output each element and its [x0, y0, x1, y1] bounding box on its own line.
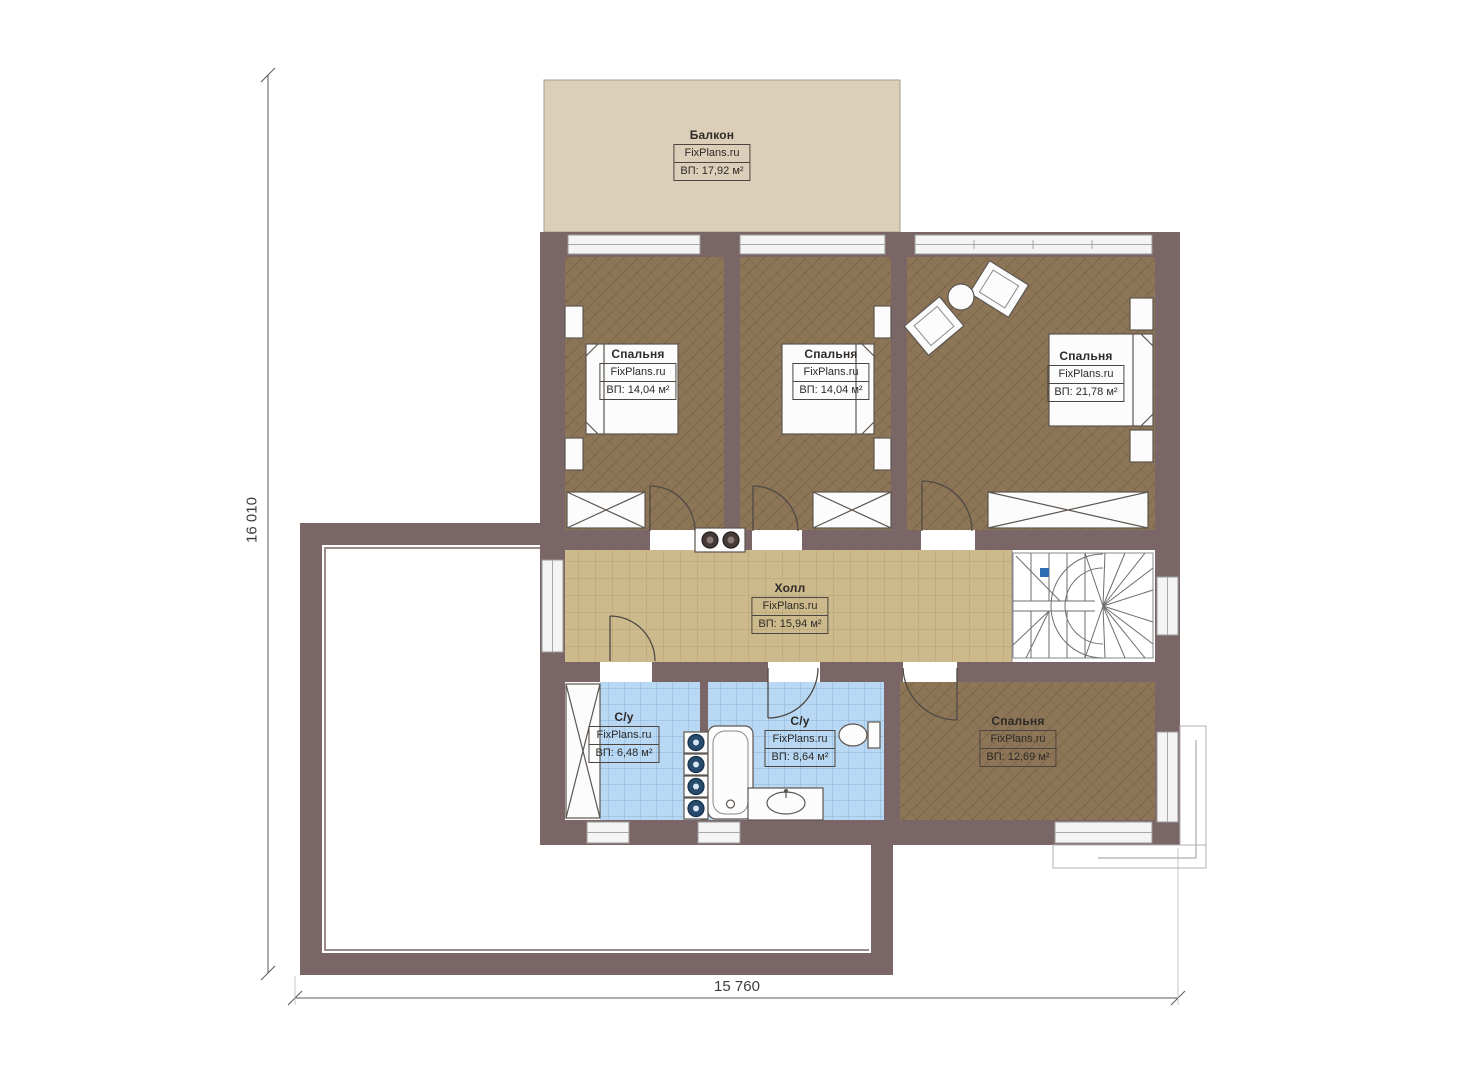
- room-label-bathroom-2: С/у FixPlans.ru ВП: 8,64 м²: [764, 714, 835, 767]
- window-stair-right: [1157, 577, 1178, 635]
- room-area: ВП: 17,92 м²: [674, 162, 749, 180]
- horizontal-dimension-value: 15 760: [714, 978, 760, 995]
- room-area: ВП: 8,64 м²: [765, 748, 834, 766]
- window-bottom-1: [587, 822, 629, 843]
- sink: [748, 788, 823, 820]
- window-top-3: [915, 235, 1152, 254]
- room-watermark: FixPlans.ru: [589, 727, 658, 744]
- vertical-dimension-value: 16 010: [244, 497, 261, 543]
- round-table: [948, 284, 974, 310]
- room-name: С/у: [764, 714, 835, 728]
- floor-plan: Балкон FixPlans.ru ВП: 17,92 м² Спальня …: [0, 0, 1474, 1080]
- room-label-balcony: Балкон FixPlans.ru ВП: 17,92 м²: [673, 128, 750, 181]
- wardrobe-bedroom-2: [813, 492, 891, 528]
- room-watermark: FixPlans.ru: [1048, 366, 1123, 383]
- room-area: ВП: 15,94 м²: [752, 615, 827, 633]
- room-name: Спальня: [979, 714, 1056, 728]
- staircase: [1013, 553, 1153, 658]
- chimney-block: [695, 528, 745, 552]
- stair-marker: [1040, 568, 1049, 577]
- window-bottom-2: [698, 822, 740, 843]
- room-name: Холл: [751, 581, 828, 595]
- room-watermark: FixPlans.ru: [674, 145, 749, 162]
- room-name: Балкон: [673, 128, 750, 142]
- room-name: С/у: [588, 710, 659, 724]
- room-label-bedroom-4: Спальня FixPlans.ru ВП: 12,69 м²: [979, 714, 1056, 767]
- wardrobe-bedroom-1: [567, 492, 645, 528]
- toilet: [839, 722, 880, 748]
- room-watermark: FixPlans.ru: [765, 731, 834, 748]
- room-area: ВП: 6,48 м²: [589, 744, 658, 762]
- window-hall-left: [542, 560, 563, 652]
- room-label-hall: Холл FixPlans.ru ВП: 15,94 м²: [751, 581, 828, 634]
- room-area: ВП: 14,04 м²: [600, 381, 675, 399]
- room-area: ВП: 12,69 м²: [980, 748, 1055, 766]
- room-area: ВП: 21,78 м²: [1048, 383, 1123, 401]
- window-top-1: [568, 235, 700, 254]
- room-label-bedroom-3: Спальня FixPlans.ru ВП: 21,78 м²: [1047, 349, 1124, 402]
- room-name: Спальня: [599, 347, 676, 361]
- room-area: ВП: 14,04 м²: [793, 381, 868, 399]
- window-top-2: [740, 235, 885, 254]
- wardrobe-bedroom-3: [988, 492, 1148, 528]
- service-shaft: [684, 732, 708, 819]
- room-watermark: FixPlans.ru: [752, 598, 827, 615]
- room-label-bedroom-2: Спальня FixPlans.ru ВП: 14,04 м²: [792, 347, 869, 400]
- bathtub: [708, 726, 753, 819]
- room-label-bathroom-1: С/у FixPlans.ru ВП: 6,48 м²: [588, 710, 659, 763]
- room-watermark: FixPlans.ru: [600, 364, 675, 381]
- room-name: Спальня: [1047, 349, 1124, 363]
- room-label-bedroom-1: Спальня FixPlans.ru ВП: 14,04 м²: [599, 347, 676, 400]
- room-watermark: FixPlans.ru: [793, 364, 868, 381]
- room-name: Спальня: [792, 347, 869, 361]
- room-watermark: FixPlans.ru: [980, 731, 1055, 748]
